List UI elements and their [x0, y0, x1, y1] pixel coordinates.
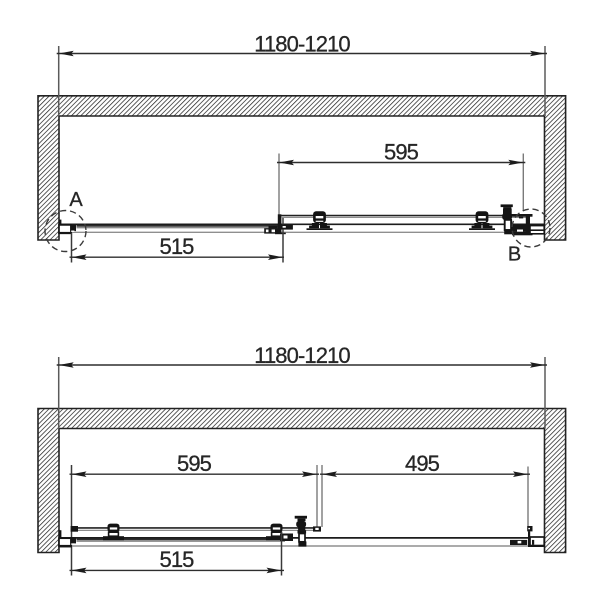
svg-text:595: 595 — [177, 451, 212, 476]
svg-text:515: 515 — [159, 547, 194, 572]
svg-text:1180-1210: 1180-1210 — [254, 343, 350, 368]
svg-text:1180-1210: 1180-1210 — [254, 32, 350, 57]
svg-text:515: 515 — [159, 234, 194, 259]
svg-text:A: A — [69, 189, 83, 211]
svg-text:595: 595 — [384, 140, 419, 165]
svg-text:495: 495 — [405, 451, 440, 476]
svg-text:B: B — [508, 244, 521, 266]
